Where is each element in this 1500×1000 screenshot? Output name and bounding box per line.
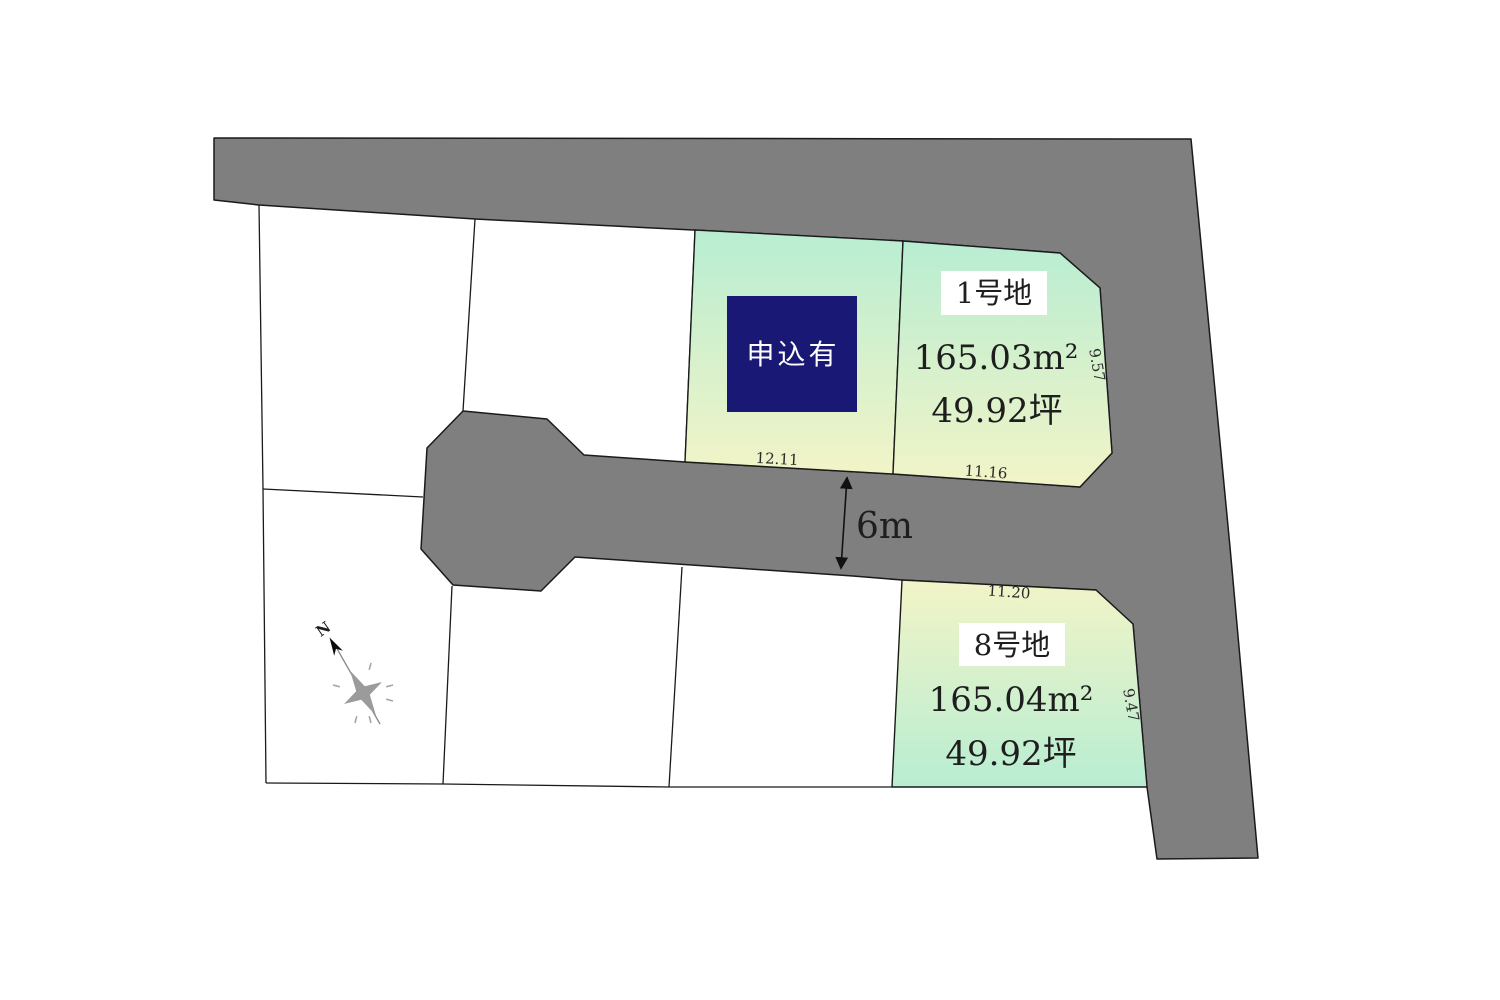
divider-bottom-row-2 — [669, 567, 682, 787]
compass-north-arrow-icon — [330, 638, 343, 656]
compass-star-icon — [344, 671, 382, 716]
dim-applied-bottom: 12.11 — [755, 449, 799, 469]
compass: N — [313, 618, 393, 724]
boundary-bottom — [266, 783, 892, 787]
applied-status-label: 申込有 — [746, 338, 839, 371]
lot-1-area-tsubo: 49.92坪 — [931, 391, 1062, 431]
lot-1-name-label: 1号地 — [956, 276, 1032, 310]
lot-8-area-sqm: 165.04m² — [929, 680, 1094, 720]
divider-left-column-row — [263, 489, 423, 497]
dim-lot1-bottom: 11.16 — [964, 462, 1008, 483]
lot-8-area-tsubo: 49.92坪 — [945, 734, 1076, 774]
road-width-label: 6m — [856, 506, 913, 547]
divider-bottom-row-1 — [443, 586, 452, 784]
lot-1-area-sqm: 165.03m² — [914, 338, 1079, 378]
dim-lot8-top: 11.20 — [987, 582, 1031, 603]
boundary-left — [259, 205, 266, 783]
divider-top-row-1 — [463, 219, 475, 411]
site-plan-page: 申込有 1号地 165.03m² 49.92坪 8号地 165.04m² 49.… — [0, 0, 1500, 1000]
lot-8-name-label: 8号地 — [974, 628, 1050, 662]
compass-north-label: N — [313, 618, 335, 641]
site-plan-map: 申込有 1号地 165.03m² 49.92坪 8号地 165.04m² 49.… — [0, 0, 1500, 1000]
